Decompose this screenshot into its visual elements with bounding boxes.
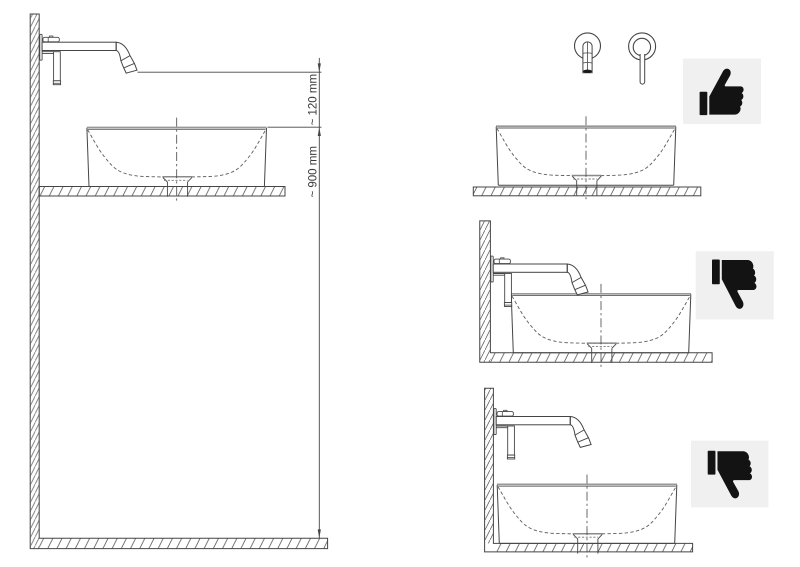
svg-text:~ 120 mm: ~ 120 mm xyxy=(308,74,320,125)
svg-text:~ 900 mm: ~ 900 mm xyxy=(308,146,320,197)
